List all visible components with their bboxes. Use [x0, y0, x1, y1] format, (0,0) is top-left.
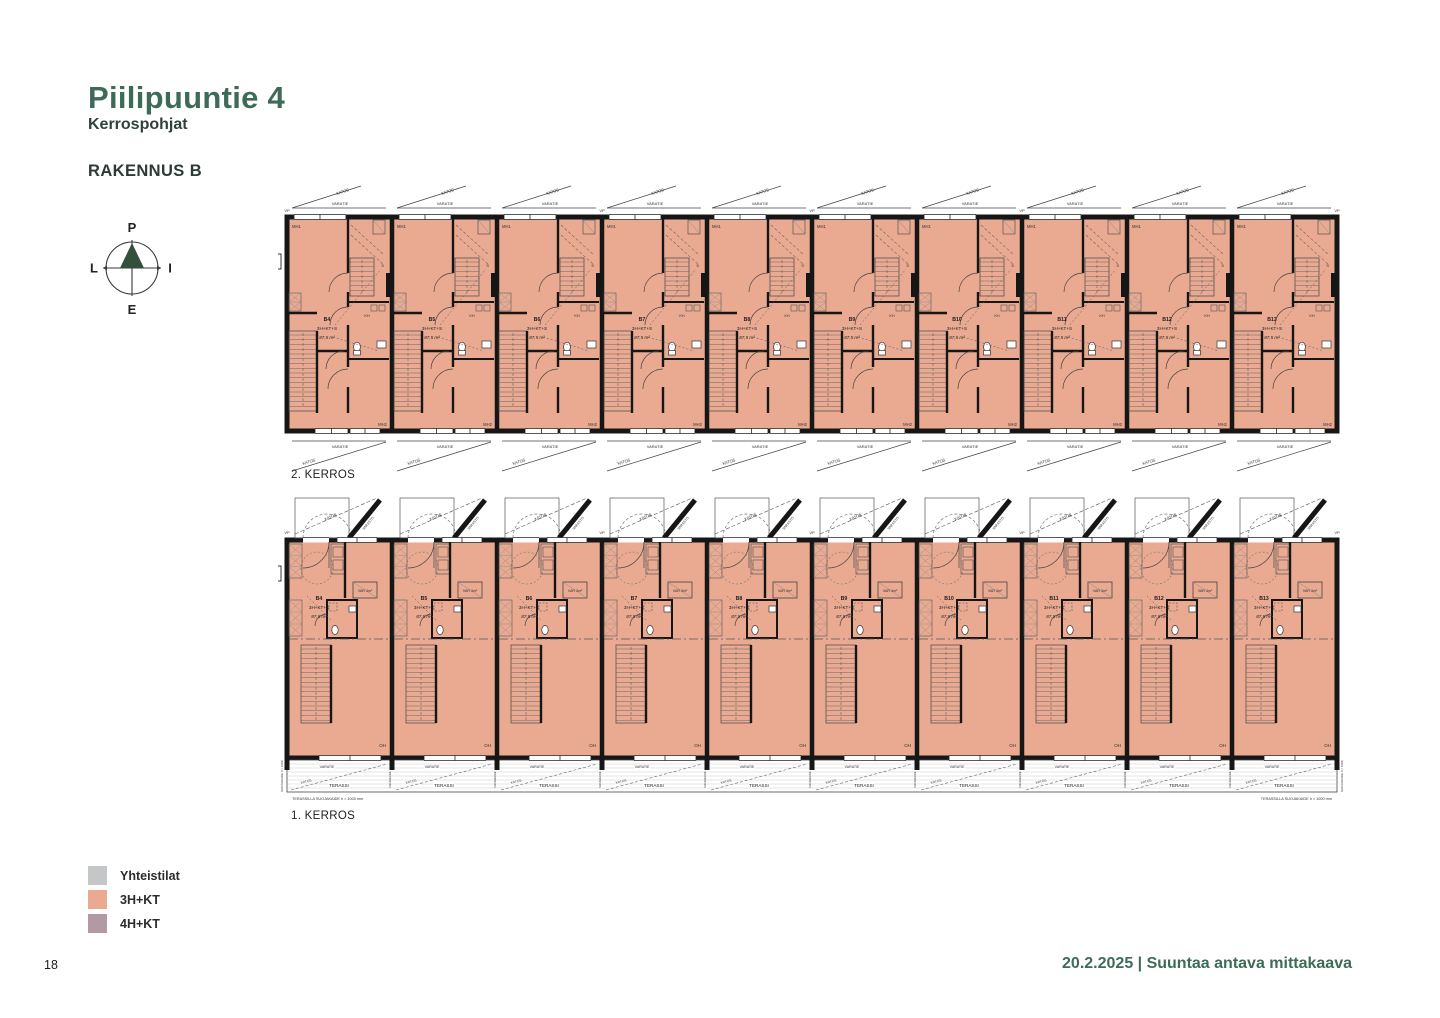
svg-text:S: S — [801, 263, 804, 268]
svg-text:VARATIE: VARATIE — [752, 444, 769, 449]
svg-text:SUOJAKAIDE: SUOJAKAIDE — [1123, 771, 1127, 788]
svg-text:B6: B6 — [534, 317, 541, 323]
svg-text:VARATIE: VARATIE — [320, 765, 335, 769]
svg-text:B13: B13 — [1259, 596, 1269, 602]
legend-label-common: Yhteistilat — [120, 869, 180, 883]
svg-text:VARATIE: VARATIE — [332, 444, 349, 449]
svg-text:B4: B4 — [316, 596, 323, 602]
svg-text:VARATIE: VARATIE — [752, 201, 769, 206]
svg-text:B5: B5 — [421, 596, 428, 602]
svg-text:SUOJAKAIDE: SUOJAKAIDE — [913, 771, 917, 788]
svg-text:VARATIE: VARATIE — [857, 201, 874, 206]
svg-text:87,5 m²: 87,5 m² — [1159, 335, 1175, 340]
svg-text:B10: B10 — [952, 317, 962, 323]
compass-north-label: P — [128, 220, 137, 235]
svg-text:KATOS: KATOS — [1037, 457, 1051, 466]
svg-text:B12: B12 — [1162, 317, 1172, 323]
svg-text:KATOS: KATOS — [512, 457, 526, 466]
building-title: RAKENNUS B — [88, 162, 202, 181]
svg-text:VAR 3m²: VAR 3m² — [358, 589, 373, 593]
svg-text:SUOJAKAIDE: SUOJAKAIDE — [388, 771, 392, 788]
plan-caption-2-kerros: 2. KERROS — [291, 469, 355, 481]
svg-text:3H+KT+S: 3H+KT+S — [1262, 326, 1282, 331]
svg-text:S: S — [696, 263, 699, 268]
svg-text:TERASSI: TERASSI — [644, 783, 664, 788]
svg-text:VARATIE: VARATIE — [1265, 765, 1280, 769]
compass-icon: P E L I — [90, 220, 174, 316]
svg-text:VP: VP — [1019, 530, 1025, 535]
legend-swatch-common — [88, 866, 107, 885]
svg-text:KATOS: KATOS — [1070, 187, 1084, 196]
svg-text:SUOJAKAIDE: SUOJAKAIDE — [598, 771, 602, 788]
svg-text:VP: VP — [809, 208, 815, 213]
svg-text:87,5 m²: 87,5 m² — [424, 335, 440, 340]
svg-text:VARATIE: VARATIE — [962, 444, 979, 449]
svg-text:B8: B8 — [736, 596, 743, 602]
legend-row-3hkt: 3H+KT — [88, 890, 180, 909]
svg-text:3H+KT+S: 3H+KT+S — [842, 326, 862, 331]
svg-text:OH: OH — [799, 743, 806, 748]
svg-text:VP: VP — [284, 208, 290, 213]
legend-row-common: Yhteistilat — [88, 866, 180, 885]
svg-text:S: S — [1221, 263, 1224, 268]
svg-text:S: S — [591, 263, 594, 268]
svg-text:OH: OH — [1219, 743, 1226, 748]
svg-text:KATOS: KATOS — [440, 187, 454, 196]
svg-text:OH: OH — [589, 743, 596, 748]
svg-text:VP: VP — [1334, 530, 1340, 535]
svg-text:KATOS: KATOS — [407, 457, 421, 466]
svg-text:B9: B9 — [841, 596, 848, 602]
legend-swatch-4hkt — [88, 914, 107, 933]
svg-text:MH2: MH2 — [1008, 422, 1018, 427]
svg-text:S: S — [906, 263, 909, 268]
svg-text:VP: VP — [284, 530, 290, 535]
svg-text:KATOS: KATOS — [1142, 457, 1156, 466]
svg-text:SUOJAKAIDE h = 1000: SUOJAKAIDE h = 1000 — [1340, 760, 1344, 792]
svg-text:KATOS: KATOS — [1175, 187, 1189, 196]
svg-text:TERASSILLA SUOJAKAIDE h = 1000: TERASSILLA SUOJAKAIDE h = 1000 mm — [292, 797, 363, 801]
svg-text:VARATIE: VARATIE — [542, 201, 559, 206]
legend: Yhteistilat 3H+KT 4H+KT — [88, 866, 180, 933]
svg-text:TERASSI: TERASSI — [1274, 783, 1294, 788]
svg-text:KATOS: KATOS — [650, 187, 664, 196]
svg-text:VARATIE: VARATIE — [1172, 201, 1189, 206]
svg-text:B5: B5 — [429, 317, 436, 323]
svg-text:VARATIE: VARATIE — [542, 444, 559, 449]
svg-text:KATOS: KATOS — [1247, 457, 1261, 466]
svg-text:B11: B11 — [1057, 317, 1066, 323]
svg-text:KATOS: KATOS — [755, 187, 769, 196]
svg-text:VARATIE: VARATIE — [647, 201, 664, 206]
svg-text:87,5 m²: 87,5 m² — [634, 335, 650, 340]
svg-text:OH: OH — [1324, 743, 1331, 748]
svg-text:VARATIE: VARATIE — [950, 765, 965, 769]
svg-text:KH: KH — [1099, 314, 1105, 318]
svg-text:SUOJAKAIDE: SUOJAKAIDE — [1228, 771, 1232, 788]
svg-text:KATOS: KATOS — [932, 457, 946, 466]
svg-text:KH: KH — [574, 314, 580, 318]
svg-text:VP: VP — [1019, 208, 1025, 213]
svg-text:B13: B13 — [1267, 317, 1277, 323]
svg-text:MH2: MH2 — [1113, 422, 1123, 427]
svg-text:VARATIE: VARATIE — [1160, 765, 1175, 769]
svg-text:VARATIE: VARATIE — [1067, 444, 1084, 449]
svg-text:VAR 3m²: VAR 3m² — [988, 589, 1003, 593]
svg-text:SUOJAKAIDE: SUOJAKAIDE — [703, 771, 707, 788]
svg-text:VARATIE: VARATIE — [1067, 201, 1084, 206]
svg-text:TERASSILLA SUOJAKAIDE h = 1000: TERASSILLA SUOJAKAIDE h = 1000 mm — [1261, 797, 1332, 801]
svg-text:VARATIE: VARATIE — [1055, 765, 1070, 769]
svg-text:VARATIE: VARATIE — [647, 444, 664, 449]
svg-text:VAR 3m²: VAR 3m² — [1303, 589, 1318, 593]
svg-text:VARATIE: VARATIE — [1277, 201, 1294, 206]
svg-text:KH: KH — [994, 314, 1000, 318]
svg-text:TERASSI: TERASSI — [434, 783, 454, 788]
legend-label-3hkt: 3H+KT — [120, 893, 160, 907]
svg-text:87,5 m²: 87,5 m² — [949, 335, 965, 340]
svg-text:OH: OH — [1114, 743, 1121, 748]
svg-text:KATOS: KATOS — [617, 457, 631, 466]
svg-text:VARATIE: VARATIE — [332, 201, 349, 206]
svg-text:VARATIE: VARATIE — [437, 201, 454, 206]
svg-text:B7: B7 — [639, 317, 646, 323]
svg-text:87,5 m²: 87,5 m² — [1264, 335, 1280, 340]
svg-text:KATOS: KATOS — [827, 457, 841, 466]
svg-text:KATOS: KATOS — [1280, 187, 1294, 196]
svg-text:MH2: MH2 — [798, 422, 808, 427]
svg-text:VP: VP — [599, 208, 605, 213]
svg-text:VARATIE: VARATIE — [425, 765, 440, 769]
svg-text:VARATIE: VARATIE — [437, 444, 454, 449]
page-subtitle: Kerrospohjat — [88, 116, 188, 134]
svg-text:TERASSI: TERASSI — [329, 783, 349, 788]
svg-text:SUOJAKAIDE: SUOJAKAIDE — [493, 771, 497, 788]
compass-east-label: I — [168, 261, 172, 276]
svg-text:VP: VP — [809, 530, 815, 535]
legend-swatch-3hkt — [88, 890, 107, 909]
svg-text:3H+KT+S: 3H+KT+S — [317, 326, 337, 331]
svg-text:VAR 3m²: VAR 3m² — [568, 589, 583, 593]
svg-text:S: S — [486, 263, 489, 268]
compass-west-label: L — [90, 261, 98, 276]
svg-text:TERASSI: TERASSI — [1064, 783, 1084, 788]
svg-text:S: S — [1326, 263, 1329, 268]
svg-text:KH: KH — [1309, 314, 1315, 318]
svg-text:MH2: MH2 — [483, 422, 493, 427]
page-number: 18 — [44, 958, 58, 972]
svg-text:MH1: MH1 — [1027, 224, 1037, 229]
floor-plan-2-kerros: VARATIEKATOSMH1SKHB43H+KT+S87,5 m²MH2VAR… — [278, 182, 1388, 474]
svg-text:MH1: MH1 — [712, 224, 722, 229]
svg-text:MH2: MH2 — [378, 422, 388, 427]
svg-text:VAR 3m²: VAR 3m² — [778, 589, 793, 593]
svg-text:VAR 3m²: VAR 3m² — [883, 589, 898, 593]
svg-text:MH2: MH2 — [903, 422, 913, 427]
svg-text:VARATIE: VARATIE — [857, 444, 874, 449]
svg-text:B9: B9 — [849, 317, 856, 323]
svg-text:MH2: MH2 — [1218, 422, 1228, 427]
svg-text:3H+KT+S: 3H+KT+S — [632, 326, 652, 331]
svg-text:VP: VP — [1334, 208, 1340, 213]
legend-row-4hkt: 4H+KT — [88, 914, 180, 933]
svg-text:B4: B4 — [324, 317, 331, 323]
svg-text:OH: OH — [1009, 743, 1016, 748]
svg-text:KH: KH — [889, 314, 895, 318]
svg-text:VAR 3m²: VAR 3m² — [1198, 589, 1213, 593]
compass-needle-icon — [120, 243, 144, 268]
svg-text:VARATIE: VARATIE — [1172, 444, 1189, 449]
svg-text:MH1: MH1 — [1132, 224, 1142, 229]
svg-text:KATOS: KATOS — [860, 187, 874, 196]
svg-text:OH: OH — [379, 743, 386, 748]
svg-text:TERASSI: TERASSI — [749, 783, 769, 788]
svg-text:3H+KT+S: 3H+KT+S — [422, 326, 442, 331]
svg-text:VAR 3m²: VAR 3m² — [463, 589, 478, 593]
svg-text:KATOS: KATOS — [965, 187, 979, 196]
compass-south-label: E — [128, 302, 137, 316]
svg-text:S: S — [1011, 263, 1014, 268]
sheet: Piilipuuntie 4 Kerrospohjat RAKENNUS B P… — [0, 0, 1440, 1018]
svg-text:B10: B10 — [944, 596, 954, 602]
svg-text:MH1: MH1 — [502, 224, 512, 229]
svg-text:87,5 m²: 87,5 m² — [844, 335, 860, 340]
footer-text: 20.2.2025 | Suuntaa antava mittakaava — [1062, 955, 1352, 973]
svg-text:87,5 m²: 87,5 m² — [739, 335, 755, 340]
svg-text:S: S — [381, 263, 384, 268]
svg-text:87,5 m²: 87,5 m² — [529, 335, 545, 340]
svg-text:MH1: MH1 — [817, 224, 827, 229]
svg-text:MH2: MH2 — [693, 422, 703, 427]
svg-text:VARATIE: VARATIE — [1277, 444, 1294, 449]
svg-text:B6: B6 — [526, 596, 533, 602]
svg-text:TERASSI: TERASSI — [854, 783, 874, 788]
svg-text:3H+KT+S: 3H+KT+S — [1052, 326, 1072, 331]
svg-text:KATOS: KATOS — [302, 457, 316, 466]
svg-text:VP: VP — [599, 530, 605, 535]
svg-text:VARATIE: VARATIE — [962, 201, 979, 206]
svg-text:MH1: MH1 — [292, 224, 302, 229]
svg-text:MH2: MH2 — [1323, 422, 1333, 427]
svg-text:MH1: MH1 — [922, 224, 932, 229]
svg-text:B7: B7 — [631, 596, 638, 602]
svg-text:SUOJAKAIDE h = 1000: SUOJAKAIDE h = 1000 — [280, 760, 284, 792]
svg-text:TERASSI: TERASSI — [959, 783, 979, 788]
legend-label-4hkt: 4H+KT — [120, 917, 160, 931]
svg-text:VARATIE: VARATIE — [845, 765, 860, 769]
svg-text:KH: KH — [679, 314, 685, 318]
svg-text:VARATIE: VARATIE — [740, 765, 755, 769]
svg-text:B8: B8 — [744, 317, 751, 323]
svg-text:KATOS: KATOS — [722, 457, 736, 466]
svg-text:VARATIE: VARATIE — [635, 765, 650, 769]
svg-text:3H+KT+S: 3H+KT+S — [947, 326, 967, 331]
plan-caption-1-kerros: 1. KERROS — [291, 810, 355, 822]
svg-text:KH: KH — [784, 314, 790, 318]
svg-text:SUOJAKAIDE: SUOJAKAIDE — [808, 771, 812, 788]
svg-text:KH: KH — [1204, 314, 1210, 318]
svg-text:B11: B11 — [1049, 596, 1058, 602]
svg-text:VAR 3m²: VAR 3m² — [673, 589, 688, 593]
svg-text:MH1: MH1 — [1237, 224, 1247, 229]
svg-text:SUOJAKAIDE: SUOJAKAIDE — [1018, 771, 1022, 788]
svg-text:KATOS: KATOS — [545, 187, 559, 196]
svg-text:TERASSI: TERASSI — [1169, 783, 1189, 788]
svg-text:87,5 m²: 87,5 m² — [319, 335, 335, 340]
svg-text:MH2: MH2 — [588, 422, 598, 427]
svg-text:S: S — [1116, 263, 1119, 268]
svg-text:MH1: MH1 — [397, 224, 407, 229]
svg-text:3H+KT+S: 3H+KT+S — [527, 326, 547, 331]
svg-text:VAR 3m²: VAR 3m² — [1093, 589, 1108, 593]
svg-text:87,5 m²: 87,5 m² — [1054, 335, 1070, 340]
svg-text:VARATIE: VARATIE — [530, 765, 545, 769]
svg-text:TERASSI: TERASSI — [539, 783, 559, 788]
svg-text:OH: OH — [484, 743, 491, 748]
svg-text:3H+KT+S: 3H+KT+S — [1157, 326, 1177, 331]
svg-text:B12: B12 — [1154, 596, 1164, 602]
compass: P E L I — [90, 220, 174, 316]
svg-text:KH: KH — [364, 314, 370, 318]
floor-plan-1-kerros: KATOSVARASTOVAR 3m²B43H+KT+S87,5 m²OHKAT… — [278, 496, 1388, 808]
page-title: Piilipuuntie 4 — [88, 80, 285, 116]
svg-text:MH1: MH1 — [607, 224, 617, 229]
svg-text:3H+KT+S: 3H+KT+S — [737, 326, 757, 331]
svg-text:OH: OH — [904, 743, 911, 748]
svg-text:KH: KH — [469, 314, 475, 318]
svg-text:KATOS: KATOS — [335, 187, 349, 196]
svg-text:OH: OH — [694, 743, 701, 748]
